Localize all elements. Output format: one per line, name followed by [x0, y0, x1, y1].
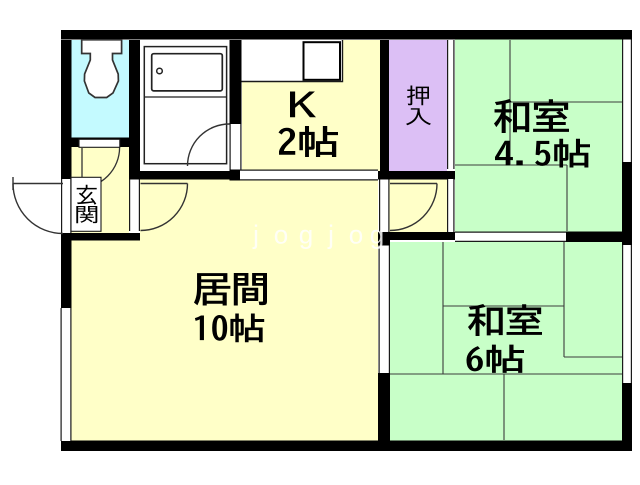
svg-text:g: g — [370, 220, 384, 250]
svg-text:j: j — [252, 220, 259, 250]
svg-text:o: o — [349, 220, 363, 250]
svg-text:g: g — [299, 220, 313, 250]
svg-text:o: o — [274, 220, 288, 250]
svg-text:j: j — [327, 220, 334, 250]
